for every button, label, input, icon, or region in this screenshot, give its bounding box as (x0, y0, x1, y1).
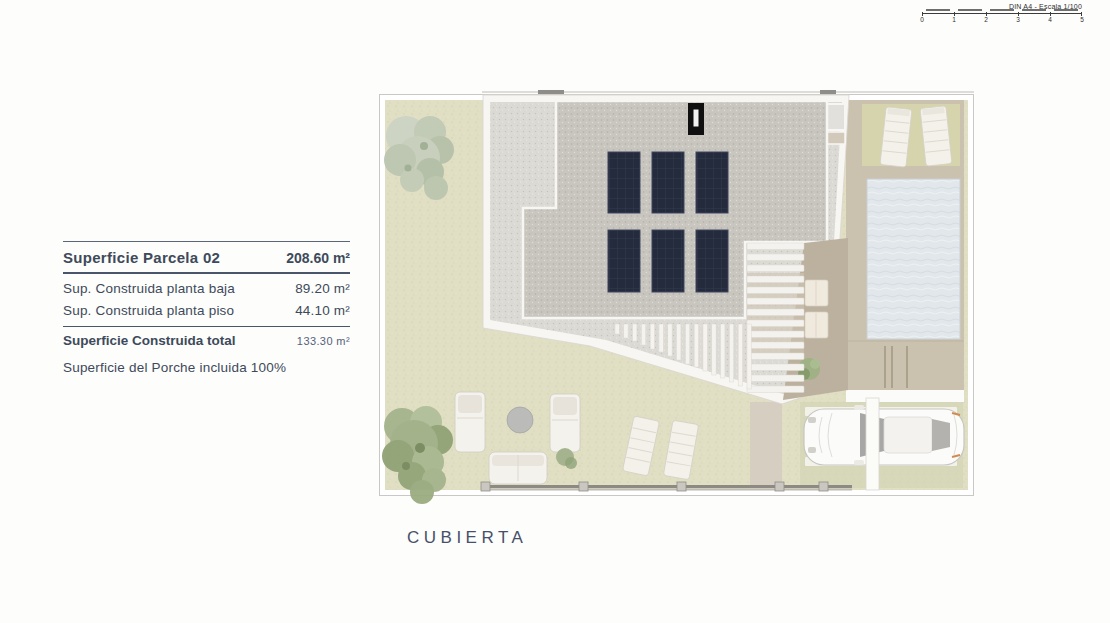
pergola-beam (866, 398, 879, 490)
surface-total-row: Superficie Construida total 133.30 m² (63, 327, 350, 352)
solar-panel (652, 230, 684, 292)
sun-lounger (880, 107, 912, 167)
wall-post (677, 482, 686, 491)
scale-segment (990, 9, 1014, 11)
scale-number: 0 (920, 16, 924, 23)
pool-deck (846, 100, 964, 402)
side-mirror (854, 460, 864, 465)
solar-panel (696, 230, 728, 292)
side-mirror (854, 405, 864, 410)
bush (565, 457, 577, 469)
car (804, 405, 964, 465)
surface-row-label: Sup. Construida planta baja (63, 281, 235, 296)
scale-number: 1 (952, 16, 956, 23)
surface-total-label: Superficie Construida total (63, 333, 236, 348)
surface-total-value: 133.30 m² (297, 335, 350, 347)
scale-bar-numbers: 0 1 2 3 4 5 (922, 16, 1082, 24)
solar-panel (608, 230, 640, 292)
rear-window (932, 419, 950, 451)
parcel-title-value: 208.60 m² (286, 250, 350, 266)
solar-panel (608, 152, 640, 213)
surface-row: Sup. Construida planta piso 44.10 m² (63, 299, 350, 321)
surface-row-label: Sup. Construida planta piso (63, 303, 234, 318)
wall-post (775, 482, 784, 491)
scale-bar-line (922, 13, 1082, 14)
surface-info-panel: Superficie Parcela 02 208.60 m² Sup. Con… (63, 241, 350, 375)
scale-segment (926, 9, 950, 11)
plan-caption: CUBIERTA (407, 528, 527, 548)
plan-sheet: DIN A4 - Escala 1/100 0 1 2 3 4 5 Superf… (0, 0, 1110, 623)
stairs-pergola (747, 243, 804, 393)
wall-post (579, 482, 588, 491)
scale-segment (958, 9, 982, 11)
sun-lounger (920, 106, 952, 166)
porch-note: Superficie del Porche incluida 100% (63, 352, 350, 375)
wall-post (819, 482, 828, 491)
wall-post (481, 482, 490, 491)
solar-panel (652, 152, 684, 213)
round-table (507, 407, 533, 433)
scale-number: 4 (1048, 16, 1052, 23)
scale-segment (1022, 9, 1046, 11)
site-plan (378, 88, 985, 505)
sofa (489, 452, 547, 484)
swimming-pool (867, 179, 960, 339)
armchair (455, 392, 485, 452)
headlight (808, 417, 816, 423)
parcel-title-label: Superficie Parcela 02 (63, 249, 220, 266)
scale-segment (1054, 9, 1078, 11)
scale-number: 5 (1080, 16, 1084, 23)
scale-bar: DIN A4 - Escala 1/100 0 1 2 3 4 5 (922, 3, 1082, 24)
scale-number: 2 (984, 16, 988, 23)
surface-row: Sup. Construida planta baja 89.20 m² (63, 274, 350, 299)
armchair (550, 394, 580, 452)
parcel-title-row: Superficie Parcela 02 208.60 m² (63, 242, 350, 272)
headlight (808, 447, 816, 453)
garden-path (750, 402, 782, 487)
surface-row-value: 89.20 m² (295, 281, 350, 296)
car-roof (884, 417, 932, 453)
solar-panel (696, 152, 728, 213)
scale-number: 3 (1016, 16, 1020, 23)
surface-row-value: 44.10 m² (295, 303, 350, 318)
